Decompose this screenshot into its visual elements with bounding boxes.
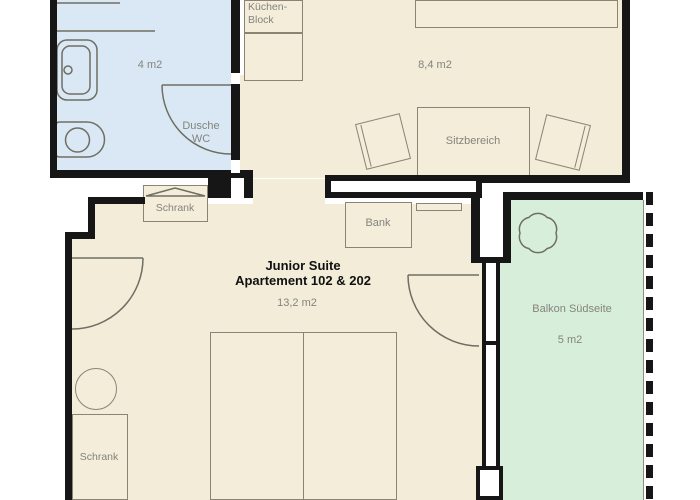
wall-balcony-left <box>503 192 511 263</box>
door-jamb-upper <box>231 73 240 84</box>
wall-niche-right <box>208 178 231 198</box>
kitchen-block-upper <box>244 0 303 33</box>
seating-table <box>417 107 530 177</box>
wall-main-left <box>65 232 72 500</box>
sideboard-table <box>415 0 618 28</box>
wall-entry-top <box>88 197 145 204</box>
balcony-railing-dashed <box>646 192 653 500</box>
wall-living-bottom <box>482 175 630 183</box>
double-bed <box>210 332 397 500</box>
bench <box>345 202 412 248</box>
door-jamb-lower <box>231 160 240 173</box>
wall-bathroom-bottom <box>50 170 253 178</box>
balcony-floor-lower <box>500 263 511 500</box>
kitchen-block-lower <box>244 33 303 81</box>
bed-divider <box>303 333 304 499</box>
bathroom-floor <box>57 0 231 170</box>
wall-window-pier <box>471 198 480 263</box>
wall-bathroom-left <box>50 0 57 178</box>
wall-bathroom-right <box>231 0 240 170</box>
wall-balcony-top <box>503 192 643 200</box>
window-mullion <box>482 341 500 345</box>
balcony-doorway-gap <box>480 198 503 257</box>
wall-divider-core <box>331 181 476 192</box>
balcony-window <box>482 263 500 468</box>
wardrobe-top <box>143 185 208 222</box>
shelf <box>416 203 462 211</box>
wall-passage-stub <box>244 170 253 198</box>
balcony-floor <box>511 200 644 500</box>
floor-plan: Küchen- Block 4 m2 Dusche WC 8,4 m2 Sitz… <box>0 0 700 500</box>
stool <box>75 368 117 410</box>
wall-living-right <box>622 0 630 183</box>
room-passage-floor <box>253 179 325 209</box>
window-post-bottom <box>476 466 503 500</box>
wardrobe-bottom <box>72 414 128 500</box>
